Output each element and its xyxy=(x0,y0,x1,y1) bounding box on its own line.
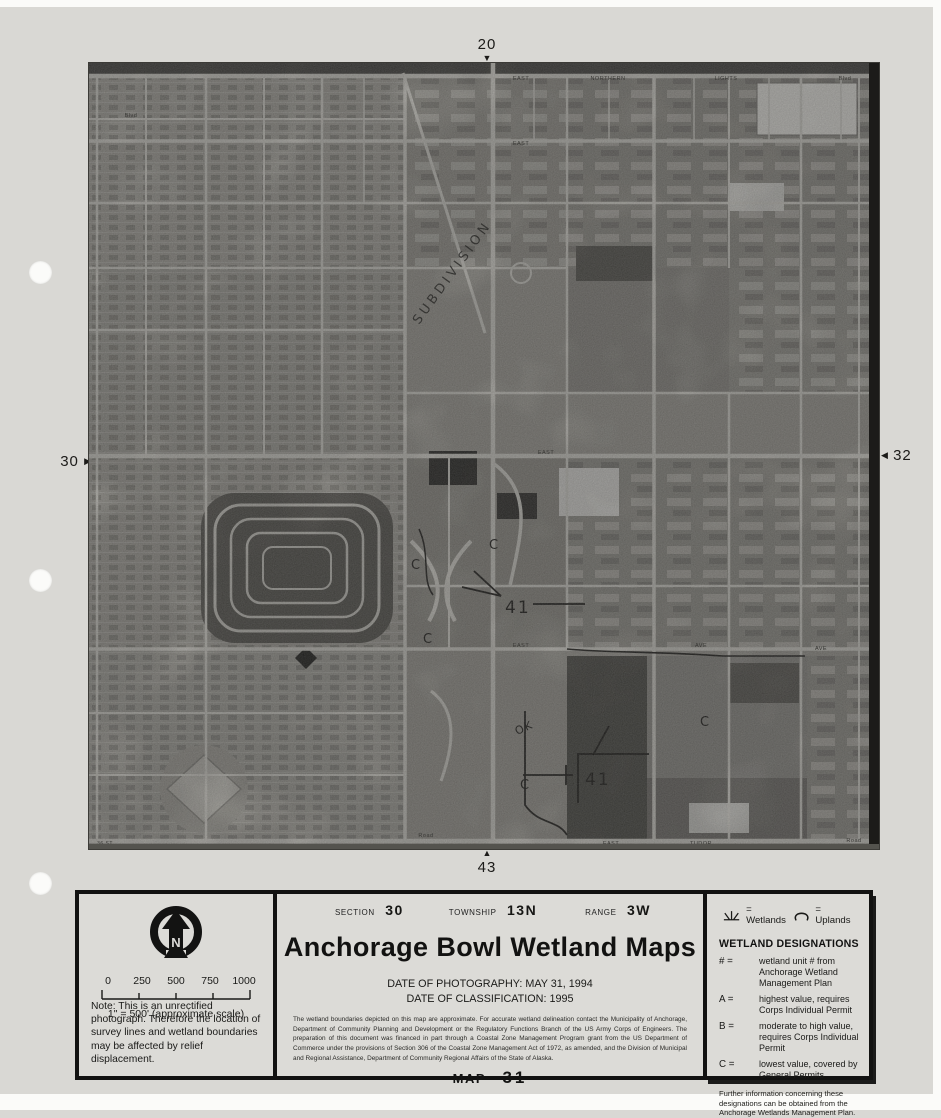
map-label: MAP xyxy=(453,1071,486,1086)
legend-block: N 0 250 500 750 1000 1" = 500' (approxim… xyxy=(75,890,873,1080)
designation-row: B = moderate to high value, requires Cor… xyxy=(719,1021,861,1054)
township-value: 13N xyxy=(507,902,537,918)
designation-desc: moderate to high value, requires Corps I… xyxy=(759,1021,861,1054)
wetlands-icon xyxy=(721,908,742,922)
range-value: 3W xyxy=(627,902,651,918)
legend-scale-panel: N 0 250 500 750 1000 1" = 500' (approxim… xyxy=(75,890,277,1080)
grid-marker-top-label: 20 xyxy=(478,36,497,53)
arrow-left-icon: ◀ xyxy=(881,451,888,460)
date-of-classification: DATE OF CLASSIFICATION: 1995 xyxy=(277,992,703,1007)
designation-row: # = wetland unit # from Anchorage Wetlan… xyxy=(719,956,861,989)
wetlands-symbol: = Wetlands xyxy=(721,904,792,926)
date-of-photography: DATE OF PHOTOGRAPHY: MAY 31, 1994 xyxy=(277,977,703,992)
range-label: RANGE xyxy=(585,908,616,917)
punch-hole xyxy=(29,569,52,592)
scale-tick: 250 xyxy=(130,975,154,987)
section-value: 30 xyxy=(385,902,404,918)
photo-bottom-band xyxy=(89,844,879,849)
aerial-photo-canvas: 41 41 C C C C C SUBDIVISION OK EAST NORT… xyxy=(89,63,879,849)
scale-tick-labels: 0 250 500 750 1000 xyxy=(96,975,256,987)
scale-tick: 750 xyxy=(198,975,222,987)
scale-tick: 1000 xyxy=(232,975,256,987)
scan-edge-top xyxy=(0,0,941,7)
designation-key: # = xyxy=(719,956,759,989)
range-field: RANGE 3W xyxy=(546,902,651,920)
township-label: TOWNSHIP xyxy=(449,908,497,917)
scale-tick: 500 xyxy=(164,975,188,987)
designation-row: C = lowest value, covered by General Per… xyxy=(719,1059,861,1081)
uplands-icon xyxy=(792,908,811,922)
photo-right-band xyxy=(869,63,879,849)
grid-marker-right: ◀ 32 xyxy=(881,448,925,463)
wetlands-symbol-label: = Wetlands xyxy=(746,904,792,926)
section-label: SECTION xyxy=(335,908,375,917)
grid-marker-left-label: 30 xyxy=(60,453,79,470)
legend-title-panel: SECTION 30 TOWNSHIP 13N RANGE 3W Anchora… xyxy=(273,890,707,1080)
page-title: Anchorage Bowl Wetland Maps xyxy=(277,932,703,963)
designation-desc: lowest value, covered by General Permits xyxy=(759,1059,861,1081)
grid-marker-bottom: ▲ 43 xyxy=(462,849,512,875)
photo-grain-light xyxy=(89,63,879,849)
designation-key: A = xyxy=(719,994,759,1016)
north-letter: N xyxy=(171,935,180,950)
scan-edge-right xyxy=(933,0,941,1110)
scale-bar-rule xyxy=(96,988,256,1000)
grid-marker-top: 20 ▼ xyxy=(462,37,512,63)
designation-key: B = xyxy=(719,1021,759,1054)
north-arrow: N xyxy=(79,902,273,971)
designation-desc: highest value, requires Corps Individual… xyxy=(759,994,861,1016)
designation-desc: wetland unit # from Anchorage Wetland Ma… xyxy=(759,956,861,989)
designations-footer: Further information concerning these des… xyxy=(719,1089,859,1118)
map-number-row: MAP 31 xyxy=(277,1068,703,1088)
designation-row: A = highest value, requires Corps Indivi… xyxy=(719,994,861,1016)
section-field: SECTION 30 xyxy=(335,902,440,920)
grid-marker-left: 30 ▶ xyxy=(51,454,91,469)
scale-tick: 0 xyxy=(96,975,120,987)
grid-marker-bottom-label: 43 xyxy=(478,859,497,876)
legend-designations-panel: = Wetlands = Uplands WETLAND DESIGNATION… xyxy=(703,890,873,1080)
township-field: TOWNSHIP 13N xyxy=(440,902,545,920)
map-number: 31 xyxy=(502,1068,527,1087)
photo-note: Note: This is an unrectified photograph.… xyxy=(91,1000,263,1066)
grid-marker-right-label: 32 xyxy=(893,447,912,464)
section-township-range-row: SECTION 30 TOWNSHIP 13N RANGE 3W xyxy=(335,902,651,920)
aerial-photo: 41 41 C C C C C SUBDIVISION OK EAST NORT… xyxy=(88,62,880,850)
uplands-symbol: = Uplands xyxy=(792,904,857,926)
dates-block: DATE OF PHOTOGRAPHY: MAY 31, 1994 DATE O… xyxy=(277,977,703,1006)
disclaimer-text: The wetland boundaries depicted on this … xyxy=(293,1015,687,1063)
punch-hole xyxy=(29,261,52,284)
north-arrow-icon: N xyxy=(145,902,207,966)
punch-hole xyxy=(29,872,52,895)
designation-key: C = xyxy=(719,1059,759,1081)
symbols-row: = Wetlands = Uplands xyxy=(721,904,857,926)
uplands-symbol-label: = Uplands xyxy=(815,904,857,926)
designations-title: WETLAND DESIGNATIONS xyxy=(719,938,869,950)
